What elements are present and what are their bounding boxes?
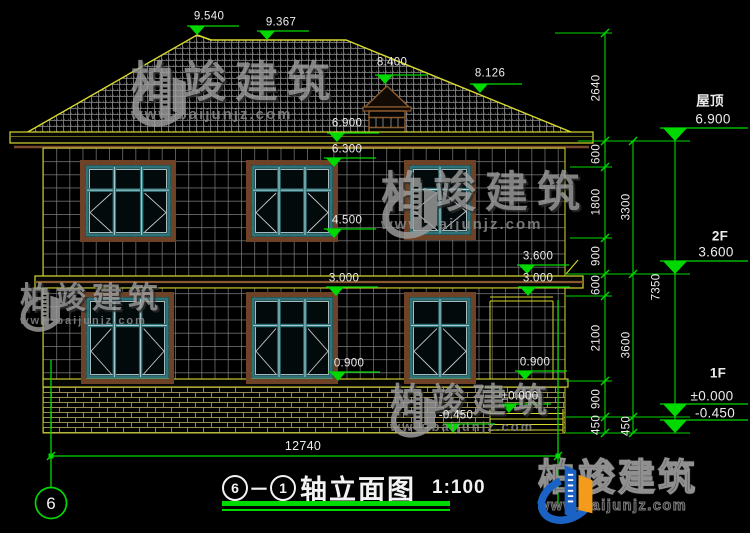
elevation-label-0000: ±0.000 [502, 391, 539, 403]
storey-level-ground: -0.450 [695, 406, 735, 420]
window [249, 295, 336, 382]
elevation-label-6900: 6.900 [332, 118, 362, 130]
elevation-label-0900: 0.900 [334, 358, 364, 370]
window [407, 295, 474, 382]
axis-bubble-number: 6 [46, 494, 55, 514]
building-elevation-linework [0, 0, 750, 533]
dim-3600: 3600 [621, 332, 633, 359]
title-axis-start-bubble: 6 [222, 475, 248, 501]
elevation-drawing-sheet: 柏竣建筑 www.baijunjz.com 柏竣建筑 www.baijunjz.… [0, 0, 750, 533]
dim-450: 450 [621, 416, 633, 436]
dim-7350: 7350 [651, 274, 663, 301]
dim-900: 900 [591, 246, 603, 266]
storey-label-1f: 1F [710, 366, 726, 380]
window [249, 163, 336, 240]
dim-450: 450 [591, 415, 603, 435]
dim-600: 600 [591, 275, 603, 295]
company-logo-icon [538, 459, 602, 529]
title-scale: 1:100 [432, 477, 486, 499]
storey-label-roof: 屋顶 [696, 94, 724, 108]
title-axis-end-bubble: 1 [270, 475, 296, 501]
dim-2640: 2640 [591, 75, 603, 102]
dim-2100: 2100 [591, 325, 603, 352]
dim-overall-width: 12740 [285, 440, 321, 453]
window [83, 163, 174, 240]
dim-3300: 3300 [621, 194, 633, 221]
title-underline-thick [222, 501, 450, 506]
title-dash: － [249, 473, 269, 502]
elevation-label-4500: 4.500 [332, 215, 362, 227]
entrance-steps [489, 409, 564, 433]
elevation-label-3000: 3.000 [523, 273, 553, 285]
storey-level-1f: ±0.000 [691, 389, 734, 403]
main-roof [12, 35, 593, 141]
elevation-label-0900: 0.900 [520, 357, 550, 369]
elevation-label-6300: 6.300 [332, 144, 362, 156]
storey-level-2f: 3.600 [698, 245, 733, 259]
elevation-label-3000: 3.000 [329, 273, 359, 285]
window [407, 163, 474, 238]
title-underline-thin [222, 509, 450, 511]
elevation-label-8126: 8.126 [475, 68, 505, 80]
elevation-label-9367: 9.367 [266, 17, 296, 29]
elevation-label-3600: 3.600 [523, 251, 553, 263]
storey-level-roof: 6.900 [695, 112, 730, 126]
dim-900: 900 [591, 389, 603, 409]
storey-label-2f: 2F [712, 229, 728, 243]
brick-plinth [43, 387, 565, 433]
eave-band [10, 132, 593, 147]
company-logo: 柏竣建筑 www.baijunjz.com [538, 459, 698, 514]
elevation-label-9540: 9.540 [194, 11, 224, 23]
elevation-label-8400: 8.400 [377, 57, 407, 69]
dim-600: 600 [591, 144, 603, 164]
elevation-label-n450: -0.450 [439, 410, 473, 422]
window [84, 295, 172, 382]
dim-1800: 1800 [591, 189, 603, 216]
